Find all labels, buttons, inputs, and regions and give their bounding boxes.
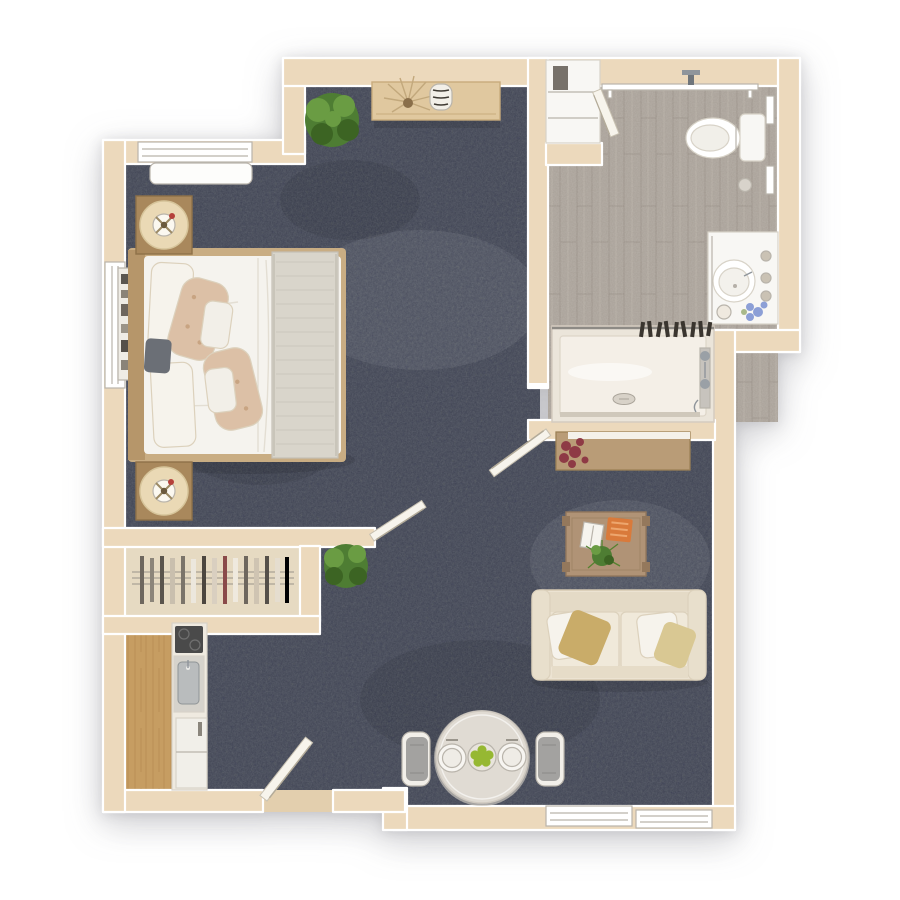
- nightstand-top: [136, 196, 192, 254]
- faucet-knob: [761, 251, 771, 261]
- toilet-paper-holder: [739, 179, 752, 192]
- soap-dish: [717, 305, 731, 319]
- dining-table: [434, 710, 530, 806]
- wall-right-living: [713, 330, 735, 830]
- floor-plan-stage: [0, 0, 900, 900]
- table-lamp: [140, 201, 188, 249]
- kitchen-sink: [174, 656, 204, 712]
- sideboard: [556, 432, 690, 470]
- refrigerator: [176, 718, 207, 788]
- fruit-bowl: [468, 743, 496, 771]
- notebook: [580, 522, 604, 550]
- nightstand-bottom: [136, 462, 192, 520]
- console-table: [372, 76, 500, 128]
- floor-plan-svg: [0, 0, 900, 900]
- faucet-knob: [761, 273, 771, 283]
- living-bottom-window-2: [636, 810, 712, 828]
- apartment-plan: [103, 58, 800, 830]
- bedroom-plant: [305, 93, 359, 147]
- vanity: [708, 232, 778, 324]
- hanging-clothes: [140, 556, 289, 604]
- dining-chair-right: [536, 732, 564, 786]
- wall-left: [103, 140, 125, 812]
- wall-closet-top: [103, 528, 375, 547]
- living-bottom-window-1: [546, 806, 632, 826]
- orange-tray: [606, 517, 633, 542]
- kitchenette: [172, 623, 207, 790]
- bedroom-top-window: [138, 142, 252, 162]
- shower: [552, 321, 714, 422]
- closet-plant: [324, 544, 368, 588]
- coffee-table: [562, 512, 650, 576]
- wall-closet-bottom: [103, 616, 320, 634]
- linen-cabinet: [546, 60, 600, 143]
- wall-nook-bottom: [546, 143, 602, 165]
- wall-end-cap: [528, 383, 548, 389]
- zebra-decor: [430, 84, 452, 110]
- table-lamp: [140, 467, 188, 515]
- queen-bed: [128, 248, 355, 474]
- dining-chair-left: [402, 732, 430, 786]
- faucet-knob: [761, 291, 771, 301]
- wall-bottom-kitchen-left: [103, 790, 263, 812]
- toilet: [686, 114, 765, 161]
- wall-bath-divider: [528, 58, 548, 388]
- wall-right-bathroom: [778, 58, 800, 352]
- wall-bottom-kitchen-right: [333, 790, 405, 812]
- throw-blanket: [272, 252, 338, 458]
- wall-closet-right: [300, 546, 320, 622]
- cooktop: [175, 626, 203, 653]
- sofa: [532, 590, 708, 692]
- hvac-unit: [150, 163, 252, 184]
